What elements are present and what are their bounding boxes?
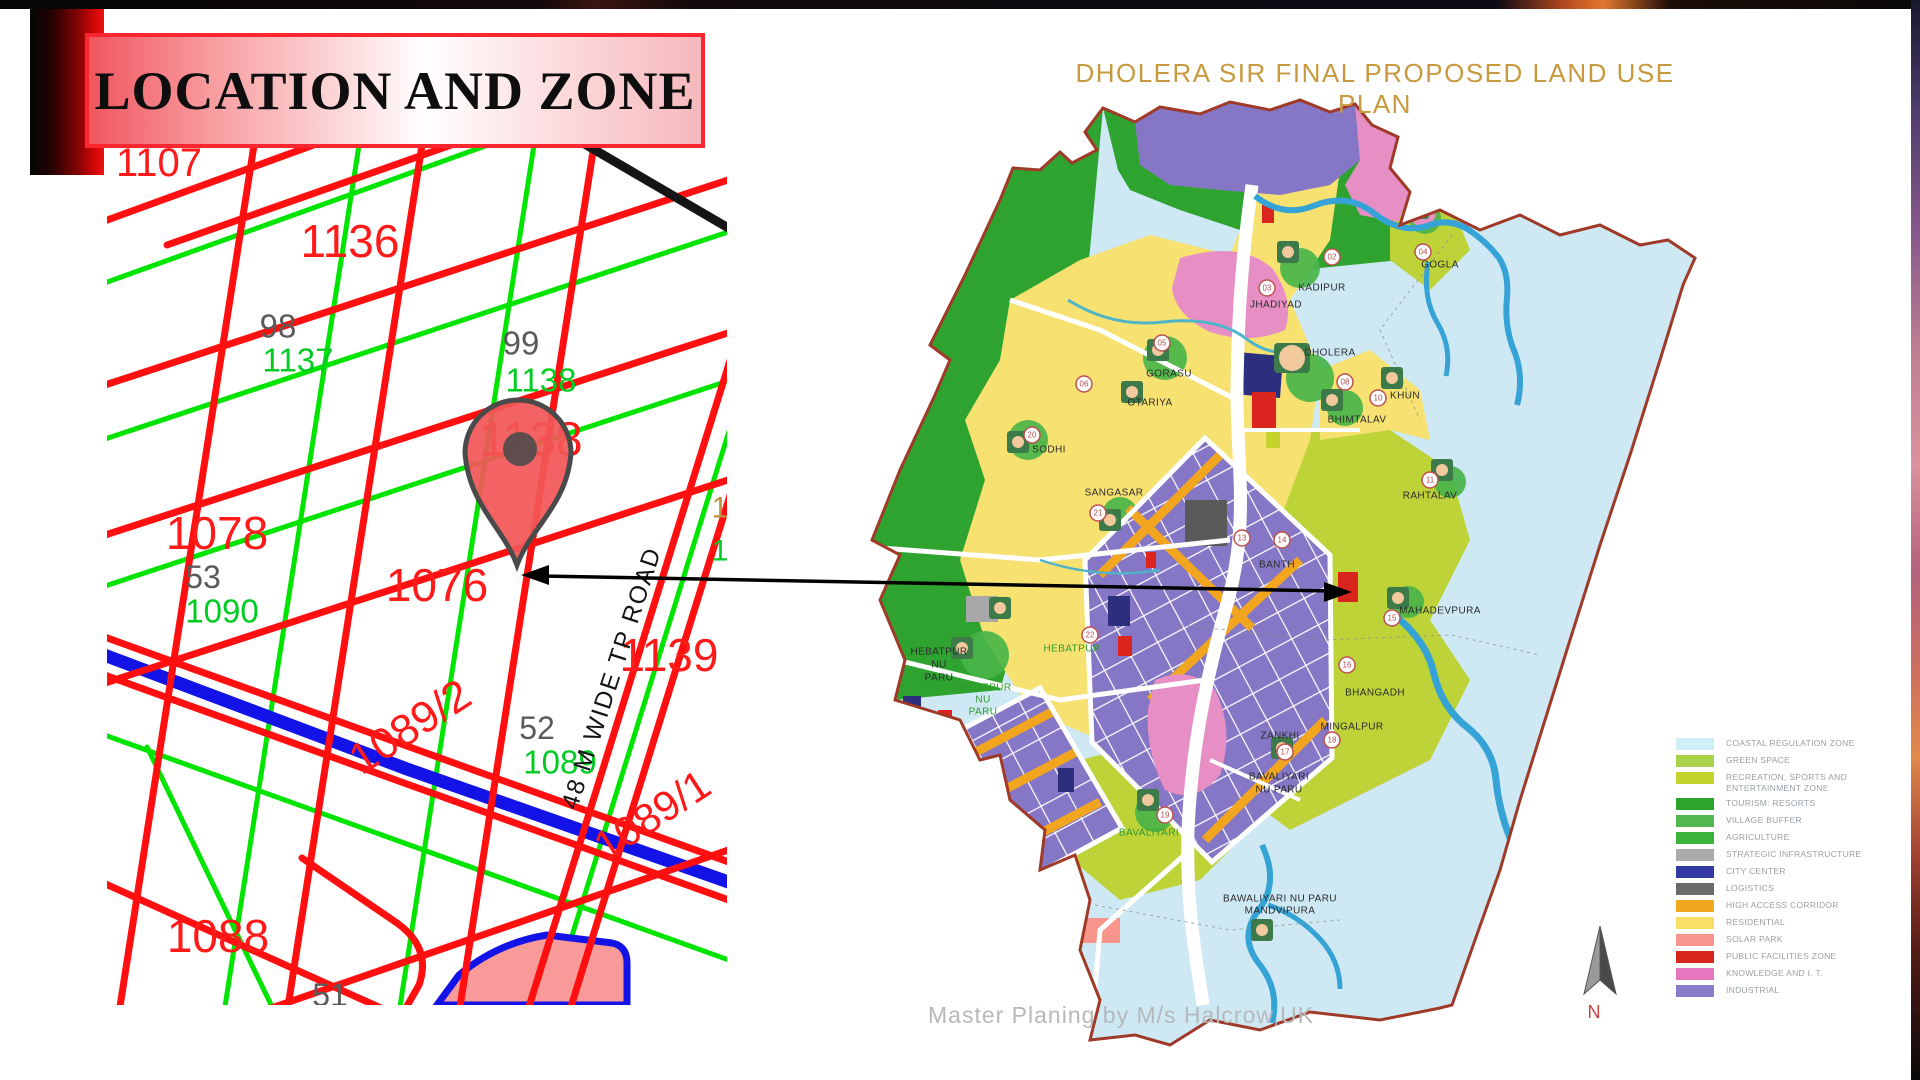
title-banner: LOCATION AND ZONE	[85, 33, 705, 148]
place-label: KADIPUR	[1298, 283, 1345, 294]
place-label: RAHTALAV	[1403, 491, 1458, 502]
legend-swatch	[1676, 832, 1714, 844]
edge-digit: 1	[712, 535, 727, 568]
legend-swatch	[1676, 968, 1714, 980]
legend-swatch	[1676, 738, 1714, 750]
place-label: MINGALPUR	[1320, 722, 1383, 733]
place-label: DHOLERA	[1304, 348, 1355, 359]
parcel-label: 52	[519, 710, 555, 746]
legend-swatch	[1676, 883, 1714, 895]
place-label: MAHADEVPURA	[1399, 606, 1481, 617]
map-credit: Master Planing by M/s Halcrow,UK	[928, 1002, 1314, 1029]
parcel-label: 1078	[166, 507, 268, 559]
legend-item: LOGISTICS	[1676, 883, 1906, 895]
place-label: BANTH	[1259, 560, 1295, 571]
page-title: LOCATION AND ZONE	[94, 60, 695, 122]
landuse-legend: COASTAL REGULATION ZONE GREEN SPACE RECR…	[1676, 738, 1906, 1002]
marker-number: 20	[1028, 431, 1037, 440]
place-label: OTARIYA	[1127, 398, 1172, 409]
legend-swatch	[1676, 755, 1714, 767]
legend-item: STRATEGIC INFRASTRUCTURE	[1676, 849, 1906, 861]
place-label: BHANGADH	[1345, 688, 1405, 699]
legend-item: TOURISM: RESORTS	[1676, 798, 1906, 810]
cadastral-map: 1107 1136 98 1137 99 1138 1138 1078 53 1…	[107, 123, 727, 1005]
slide: LOCATION AND ZONE	[0, 0, 1920, 1080]
parcel-label: 1090	[185, 593, 258, 630]
place-label: BAVALIYARI	[1249, 772, 1309, 783]
place-label: BHIMTALAV	[1328, 415, 1387, 426]
parcel-label: 1088	[167, 910, 269, 962]
cadastral-map-canvas: 1107 1136 98 1137 99 1138 1138 1078 53 1…	[107, 123, 727, 1005]
legend-item: COASTAL REGULATION ZONE	[1676, 738, 1906, 750]
background-photo-strip-right	[1911, 0, 1920, 1080]
place-label: BAWALIYARI NU PARU	[1223, 894, 1337, 905]
marker-number: 03	[1263, 284, 1272, 293]
legend-item: VILLAGE BUFFER	[1676, 815, 1906, 827]
legend-swatch	[1676, 815, 1714, 827]
place-label: BAVALIYARI	[1119, 828, 1179, 839]
legend-item: INDUSTRIAL	[1676, 985, 1906, 997]
marker-number: 04	[1419, 248, 1428, 257]
legend-swatch	[1676, 772, 1714, 784]
parcel-label: 1137	[263, 342, 334, 379]
marker-number: 02	[1328, 253, 1337, 262]
marker-number: 21	[1094, 509, 1103, 518]
place-label: JHADIYAD	[1250, 300, 1302, 311]
legend-item: CITY CENTER	[1676, 866, 1906, 878]
marker-number: 08	[1341, 378, 1350, 387]
edge-digit: 1	[712, 492, 727, 525]
legend-item: GREEN SPACE	[1676, 755, 1906, 767]
parcel-label: 1138	[506, 362, 577, 399]
place-label: MANDVIPURA	[1245, 906, 1316, 917]
legend-item: AGRICULTURE	[1676, 832, 1906, 844]
place-label: HEBATPUR	[1044, 644, 1101, 655]
legend-swatch	[1676, 917, 1714, 929]
place-label: GOGLA	[1421, 260, 1459, 271]
parcel-label: 53	[185, 559, 221, 595]
legend-swatch	[1676, 866, 1714, 878]
landuse-map-title: DHOLERA SIR FINAL PROPOSED LAND USE PLAN	[1040, 58, 1710, 120]
place-label: SANGASAR	[1085, 488, 1144, 499]
place-label: NU	[975, 695, 990, 706]
legend-item: RECREATION, SPORTS ANDENTERTAINMENT ZONE	[1676, 772, 1906, 793]
landuse-zones	[730, 95, 1740, 1055]
background-photo-strip-top	[0, 0, 1920, 9]
marker-number: 16	[1343, 661, 1352, 670]
legend-swatch	[1676, 849, 1714, 861]
place-label: SODHI	[1032, 445, 1066, 456]
place-label: NU	[931, 660, 946, 671]
parcel-label: 98	[260, 308, 297, 345]
parcel-label: 99	[503, 325, 540, 362]
marker-number: 11	[1426, 476, 1435, 485]
place-label: PARU	[925, 673, 954, 684]
legend-item: KNOWLEDGE AND I. T.	[1676, 968, 1906, 980]
legend-swatch	[1676, 934, 1714, 946]
place-label: HEBATPUR	[911, 647, 968, 658]
north-arrow-icon: N	[1584, 926, 1616, 1022]
legend-swatch	[1676, 985, 1714, 997]
marker-number: 13	[1238, 534, 1247, 543]
parcel-label: 51	[312, 977, 348, 1005]
marker-number: 10	[1374, 394, 1383, 403]
marker-number: 05	[1158, 339, 1167, 348]
place-label: ZANKHI	[1260, 731, 1299, 742]
place-label: PARU	[969, 707, 998, 718]
location-pin-icon	[465, 400, 571, 565]
place-label: NU PARU	[1255, 785, 1302, 796]
marker-number: 06	[1080, 380, 1089, 389]
marker-number: 17	[1281, 748, 1290, 757]
parcel-label: 1136	[301, 215, 400, 267]
parcel-label: 1076	[386, 559, 488, 611]
place-label: GORASU	[1146, 369, 1192, 380]
marker-number: 15	[1388, 614, 1397, 623]
marker-number: 19	[1161, 811, 1170, 820]
legend-item: HIGH ACCESS CORRIDOR	[1676, 900, 1906, 912]
legend-item: PUBLIC FACILITIES ZONE	[1676, 951, 1906, 963]
legend-item: SOLAR PARK	[1676, 934, 1906, 946]
legend-swatch	[1676, 951, 1714, 963]
legend-item: RESIDENTIAL	[1676, 917, 1906, 929]
place-label: HEBATPUR	[955, 683, 1012, 694]
legend-swatch	[1676, 900, 1714, 912]
landuse-map: 02 03 04 05 06 08 10 11 13 14 15 16 17 1…	[730, 95, 1740, 1055]
place-label: KHUN	[1390, 391, 1420, 402]
marker-number: 22	[1086, 631, 1095, 640]
marker-number: 14	[1278, 536, 1287, 545]
compass-label: N	[1588, 1002, 1601, 1022]
legend-swatch	[1676, 798, 1714, 810]
marker-number: 18	[1328, 736, 1337, 745]
